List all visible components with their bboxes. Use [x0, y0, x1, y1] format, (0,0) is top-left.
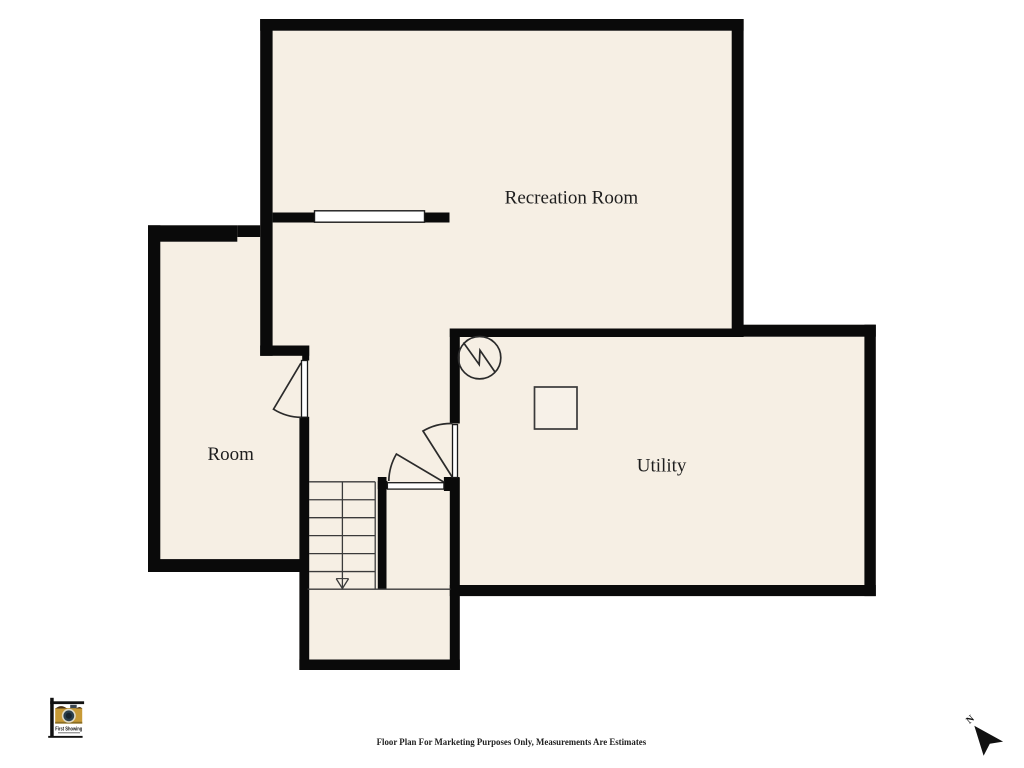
svg-text:Recreation Room: Recreation Room	[505, 187, 639, 208]
svg-text:Floor Plan For Marketing Purpo: Floor Plan For Marketing Purposes Only, …	[377, 738, 647, 748]
svg-text:First Showing: First Showing	[55, 727, 82, 733]
svg-text:Utility: Utility	[637, 455, 687, 476]
svg-text:Room: Room	[207, 444, 254, 465]
